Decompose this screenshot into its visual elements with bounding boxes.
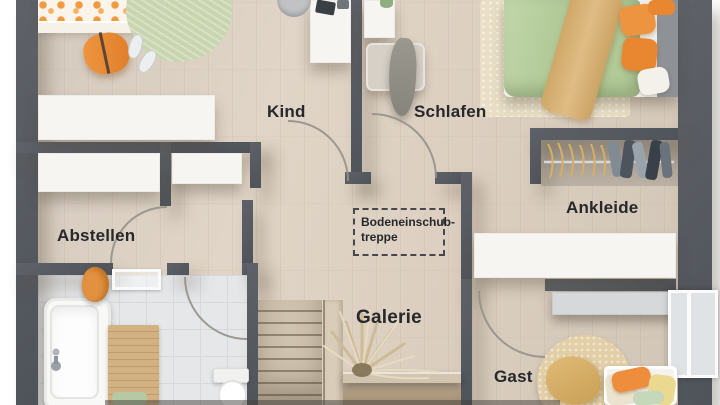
hanging-clothes — [607, 139, 673, 180]
room-label-ankleide: Ankleide — [566, 198, 638, 218]
room-label-galerie: Galerie — [356, 307, 422, 329]
bathtub-faucet — [51, 349, 61, 372]
door-arc-kind — [288, 121, 348, 181]
empty-hangers — [548, 143, 605, 178]
door-arc-gast — [479, 291, 545, 357]
floor-plan: Bodeneinschub- treppe — [0, 0, 720, 405]
room-label-gast: Gast — [494, 367, 533, 387]
door-arc-schlafen — [372, 114, 436, 178]
room-label-abstellen: Abstellen — [57, 226, 135, 246]
room-label-schlafen: Schlafen — [414, 102, 486, 122]
door-arc-bath — [185, 277, 247, 339]
room-label-kind: Kind — [267, 102, 306, 122]
